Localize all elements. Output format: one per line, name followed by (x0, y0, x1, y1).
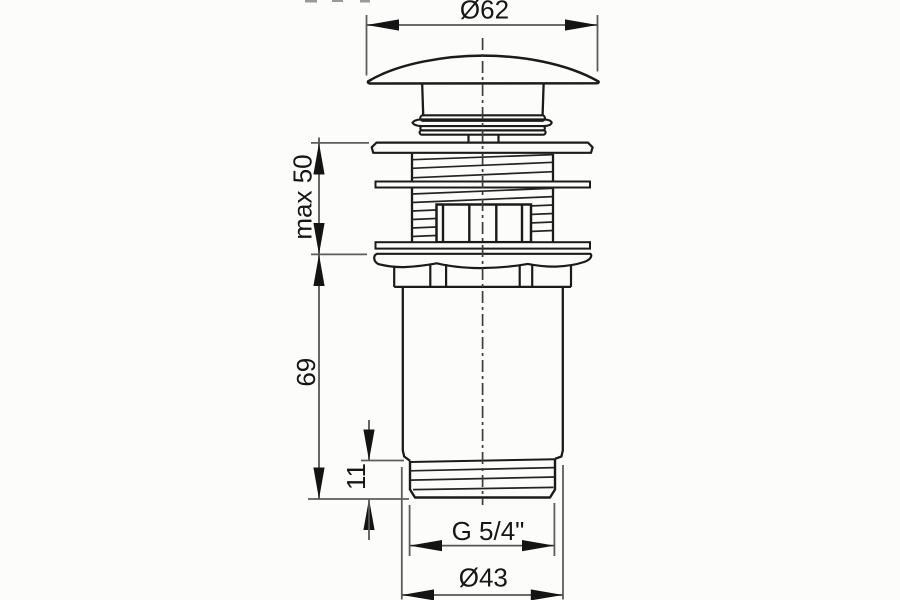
svg-text:Ø43: Ø43 (459, 563, 508, 593)
svg-text:max 50: max 50 (288, 154, 318, 239)
svg-text:69: 69 (291, 358, 321, 387)
svg-text:Ø62: Ø62 (460, 0, 509, 25)
svg-text:G 5/4": G 5/4" (452, 516, 525, 546)
svg-text:11: 11 (341, 463, 371, 490)
